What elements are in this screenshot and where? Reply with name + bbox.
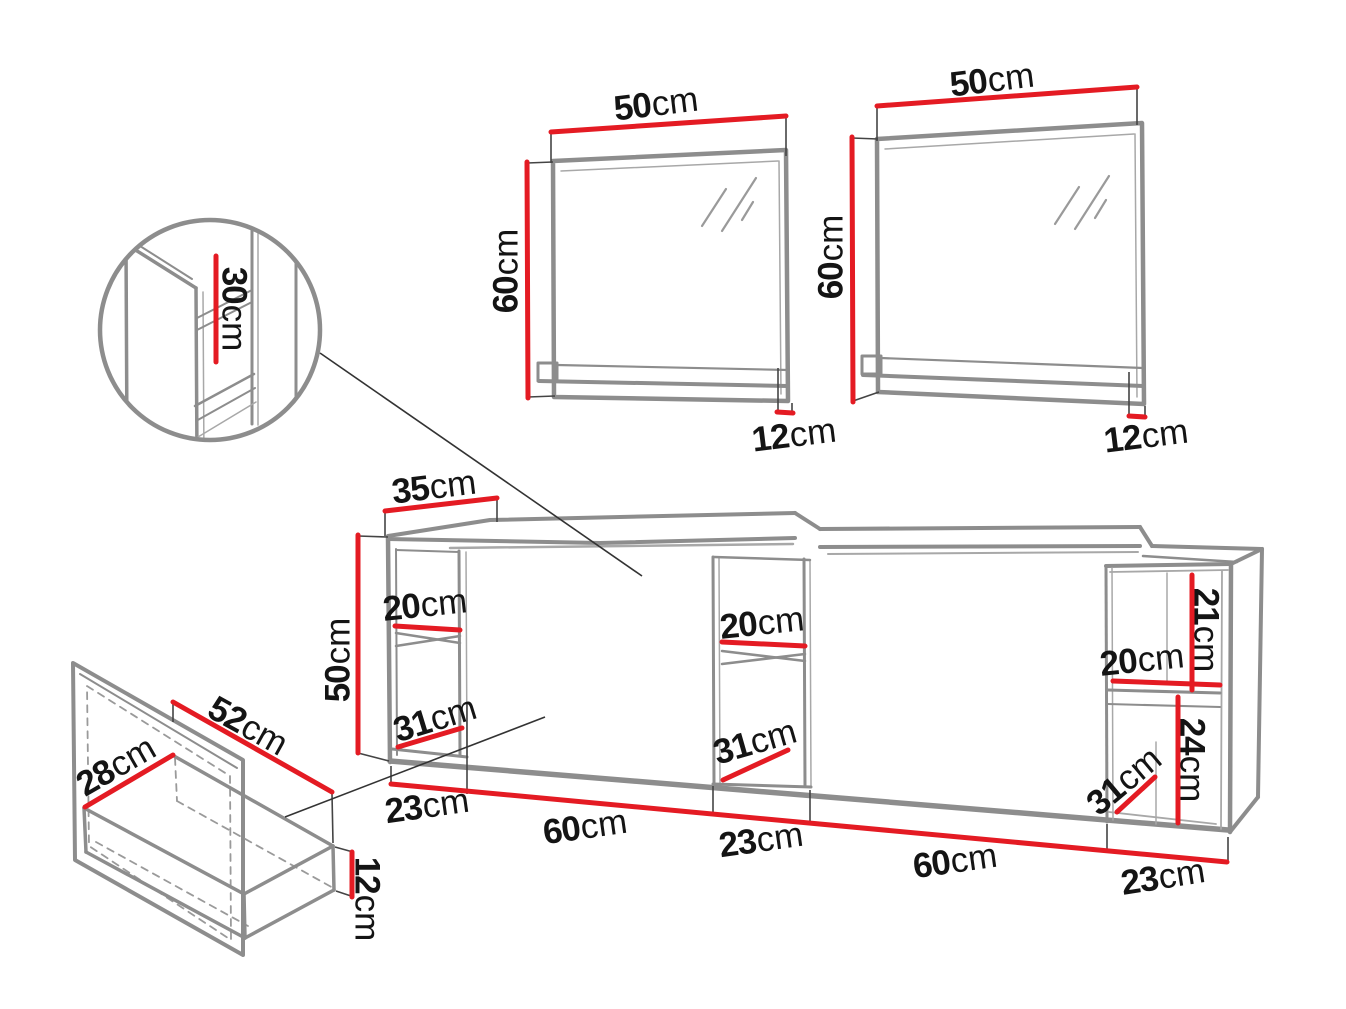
diagram-line-art [0,0,1346,1009]
furniture-dimension-diagram: 50cm60cm12cm50cm60cm12cm30cm35cm50cm20cm… [0,0,1346,1009]
